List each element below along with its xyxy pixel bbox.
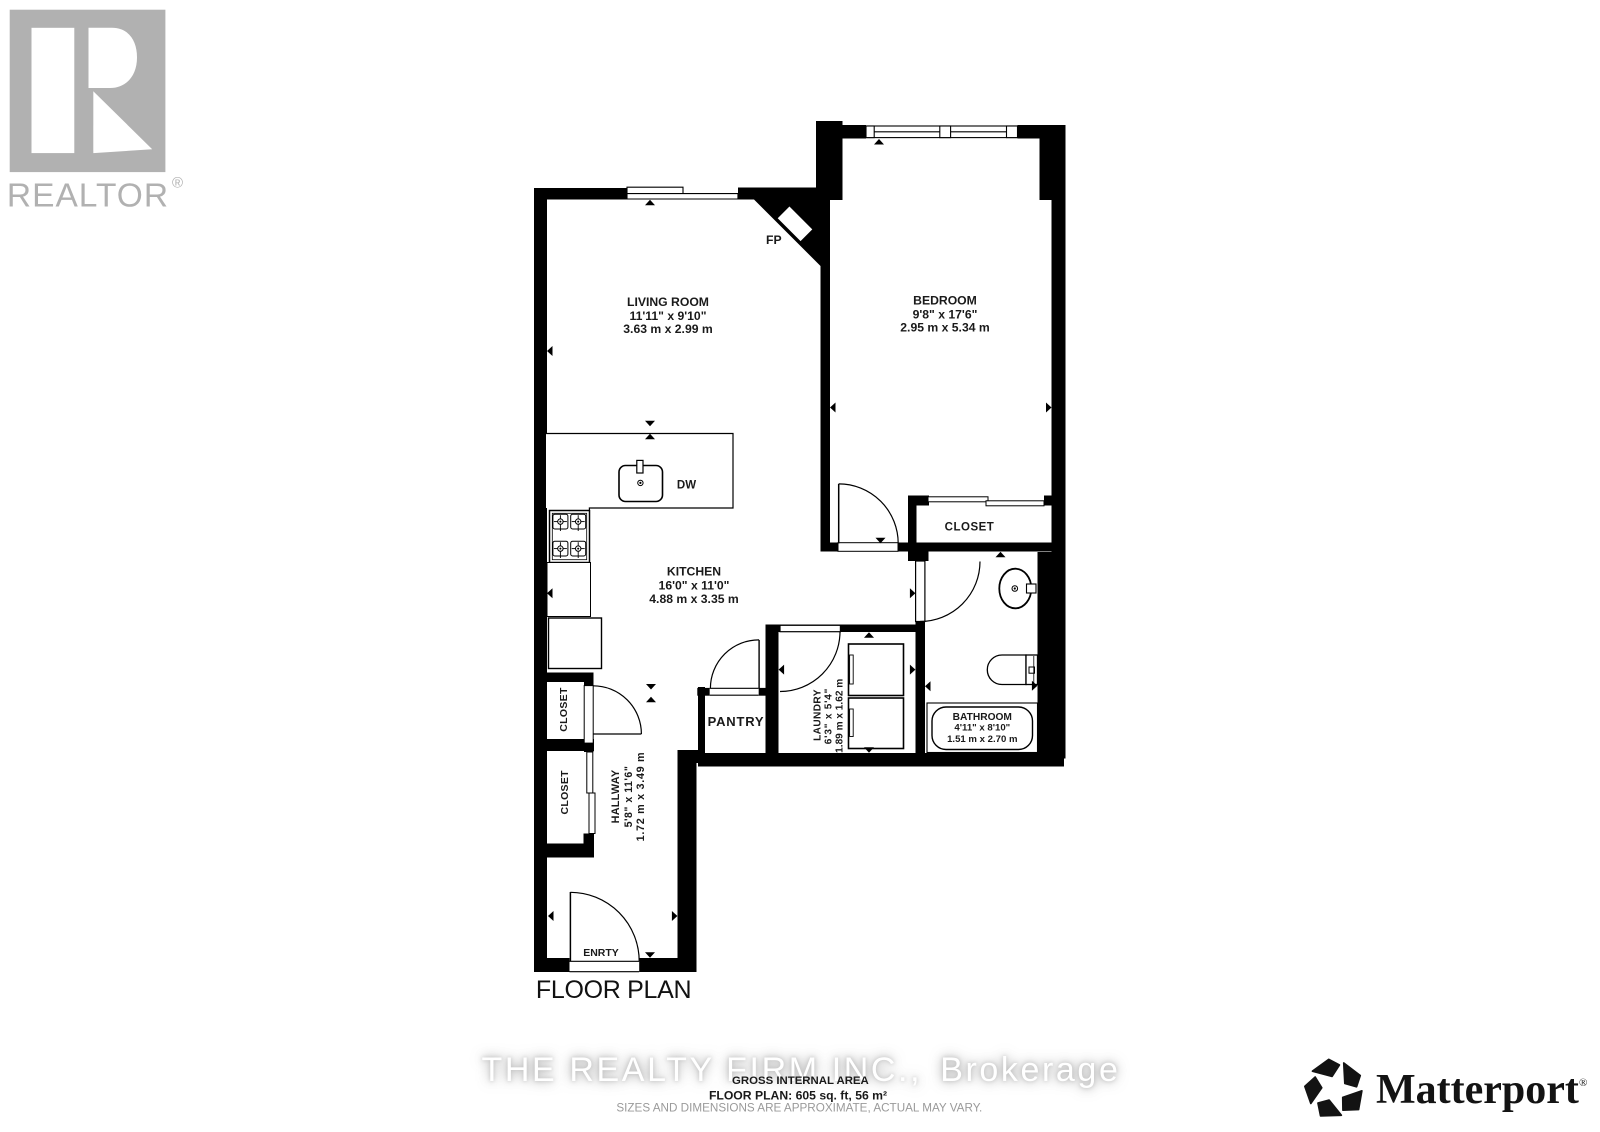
svg-text:REALTOR: REALTOR xyxy=(7,178,169,215)
svg-text:CLOSET: CLOSET xyxy=(559,770,571,815)
svg-text:SIZES AND DIMENSIONS ARE APPRO: SIZES AND DIMENSIONS ARE APPROXIMATE, AC… xyxy=(616,1102,982,1115)
svg-text:FLOOR PLAN: 605 sq. ft, 56 m²: FLOOR PLAN: 605 sq. ft, 56 m² xyxy=(709,1089,887,1103)
svg-text:CLOSET: CLOSET xyxy=(945,522,995,534)
svg-text:1.89 m x 1.62 m: 1.89 m x 1.62 m xyxy=(834,679,845,753)
svg-text:2.95 m x 5.34 m: 2.95 m x 5.34 m xyxy=(900,321,990,335)
svg-text:FP: FP xyxy=(766,233,782,247)
svg-text:®: ® xyxy=(172,175,183,192)
svg-text:ENRTY: ENRTY xyxy=(583,947,619,959)
svg-text:4.88 m x 3.35 m: 4.88 m x 3.35 m xyxy=(649,592,739,606)
svg-text:4'11" x 8'10": 4'11" x 8'10" xyxy=(954,723,1010,734)
svg-text:HALLWAY: HALLWAY xyxy=(610,769,622,823)
svg-text:6'3" x 5'4": 6'3" x 5'4" xyxy=(823,688,834,744)
svg-text:11'11" x 9'10": 11'11" x 9'10" xyxy=(629,309,706,323)
svg-text:KITCHEN: KITCHEN xyxy=(667,564,721,578)
svg-text:PANTRY: PANTRY xyxy=(708,714,765,729)
svg-text:GROSS INTERNAL AREA: GROSS INTERNAL AREA xyxy=(732,1075,869,1087)
svg-text:LAUNDRY: LAUNDRY xyxy=(812,689,823,741)
svg-text:CLOSET: CLOSET xyxy=(558,687,570,732)
svg-text:1.72 m x 3.49 m: 1.72 m x 3.49 m xyxy=(635,752,647,842)
svg-text:FLOOR PLAN: FLOOR PLAN xyxy=(536,976,691,1004)
svg-text:9'8" x 17'6": 9'8" x 17'6" xyxy=(913,308,978,322)
svg-text:LIVING ROOM: LIVING ROOM xyxy=(627,295,709,309)
svg-text:BEDROOM: BEDROOM xyxy=(913,294,977,308)
svg-text:DW: DW xyxy=(677,480,696,492)
svg-text:3.63 m x 2.99 m: 3.63 m x 2.99 m xyxy=(623,322,713,336)
svg-text:16'0" x 11'0": 16'0" x 11'0" xyxy=(659,579,730,593)
svg-text:5'8" x 11'6": 5'8" x 11'6" xyxy=(623,766,635,828)
svg-text:BATHROOM: BATHROOM xyxy=(953,712,1012,723)
svg-text:Matterport: Matterport xyxy=(1376,1067,1579,1113)
svg-text:1.51 m x 2.70 m: 1.51 m x 2.70 m xyxy=(947,734,1017,745)
svg-text:®: ® xyxy=(1579,1077,1587,1089)
